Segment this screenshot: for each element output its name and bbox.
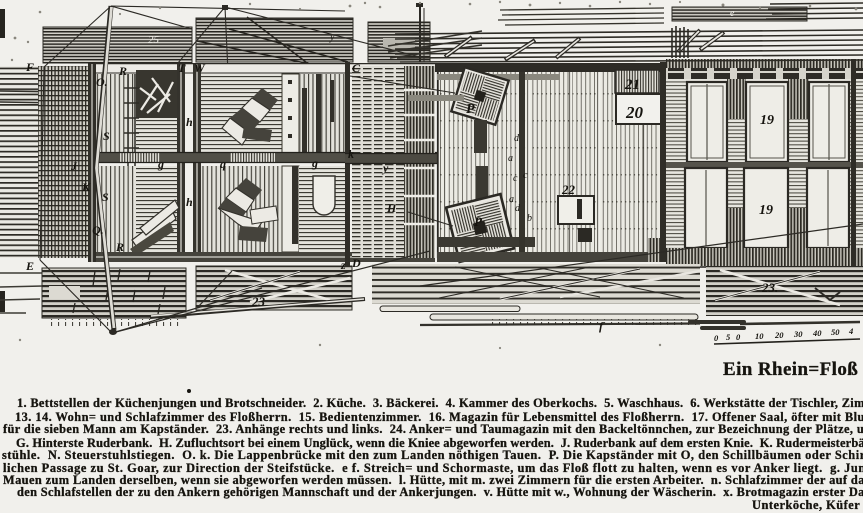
svg-text:C: C xyxy=(352,61,361,75)
svg-text:R: R xyxy=(118,64,127,78)
svg-text:20: 20 xyxy=(625,103,644,122)
svg-text:R: R xyxy=(115,240,124,254)
svg-text:q: q xyxy=(220,157,226,171)
svg-text:F: F xyxy=(25,60,34,74)
svg-text:D: D xyxy=(351,256,361,270)
svg-text:19: 19 xyxy=(760,113,774,128)
svg-text:a: a xyxy=(509,194,514,205)
svg-text:g: g xyxy=(311,156,318,170)
svg-text:O.: O. xyxy=(96,75,108,89)
svg-text:H: H xyxy=(386,201,397,215)
svg-text:50: 50 xyxy=(831,327,840,337)
svg-text:20: 20 xyxy=(774,330,784,340)
svg-text:23.: 23. xyxy=(761,280,778,295)
svg-text:c: c xyxy=(523,170,528,181)
svg-text:40: 40 xyxy=(812,328,822,338)
svg-text:P: P xyxy=(466,102,475,117)
svg-text:b: b xyxy=(527,213,532,224)
svg-text:h: h xyxy=(186,195,193,209)
svg-text:25: 25 xyxy=(148,34,160,46)
svg-text:z: z xyxy=(340,258,346,272)
svg-text:30: 30 xyxy=(793,329,803,339)
svg-text:y: y xyxy=(381,161,389,175)
svg-text:P: P xyxy=(474,214,483,229)
svg-text:c: c xyxy=(513,173,518,184)
svg-text:22: 22 xyxy=(561,182,576,197)
svg-text:T: T xyxy=(178,61,186,75)
svg-text:4: 4 xyxy=(848,326,853,336)
svg-text:h: h xyxy=(186,115,193,129)
svg-text:S: S xyxy=(102,190,109,204)
svg-text:a: a xyxy=(508,153,513,164)
svg-text:J: J xyxy=(70,159,78,173)
svg-text:e: e xyxy=(730,8,735,19)
svg-text:K: K xyxy=(81,180,91,194)
svg-text:E: E xyxy=(25,259,34,273)
svg-text:k: k xyxy=(348,147,354,161)
svg-text:g: g xyxy=(157,157,164,171)
svg-text:21: 21 xyxy=(624,77,640,93)
svg-text:Q.: Q. xyxy=(92,223,104,237)
svg-text:S: S xyxy=(103,129,110,143)
svg-text:10: 10 xyxy=(755,331,764,341)
svg-text:W: W xyxy=(194,61,206,75)
svg-text:19: 19 xyxy=(759,203,773,218)
